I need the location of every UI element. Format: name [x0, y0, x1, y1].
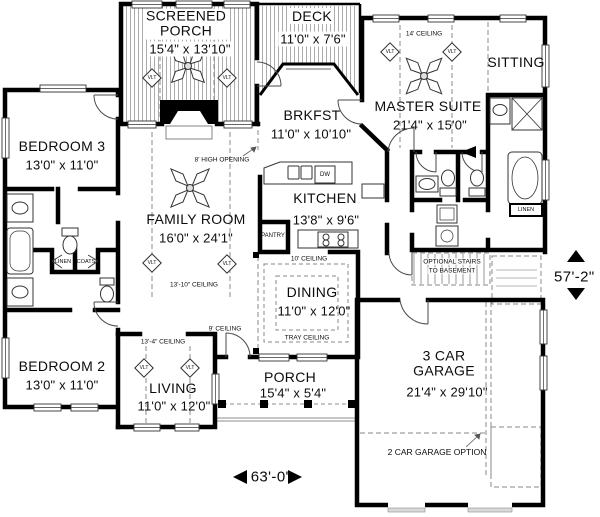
vault-marker: VLT	[180, 358, 200, 378]
vault-marker: VLT	[142, 253, 162, 273]
overall-depth-dimension: 57'-2"	[554, 269, 595, 286]
note-8ft-high-opening: 8' HIGH OPENING	[195, 157, 250, 164]
room-dims-deck: 11'0" x 7'6"	[278, 32, 348, 47]
room-label-master-suite: MASTER SUITE	[374, 98, 481, 114]
room-label-screened-porch: SCREENED PORCH	[144, 9, 228, 40]
note-garage-option: 2 CAR GARAGE OPTION	[388, 447, 487, 457]
label-pantry: PANTRY	[261, 233, 285, 239]
toilet-tank	[62, 228, 78, 236]
porch-column	[304, 400, 312, 408]
stoop-outline	[492, 256, 541, 304]
sink	[419, 179, 435, 190]
room-dims-bedroom3: 13'0" x 11'0"	[26, 158, 99, 173]
label-linen-right: LINEN	[518, 207, 534, 213]
toilet-bowl	[101, 286, 114, 302]
height-arrow-down	[567, 288, 585, 300]
note-optional-stairs-2: TO BASEMENT	[428, 267, 476, 274]
label-dishwasher: DW	[320, 172, 330, 178]
room-dims-master-suite: 21'4" x 15'0"	[393, 118, 467, 133]
note-optional-stairs-1: OPTIONAL STAIRS	[422, 258, 481, 265]
front-porch-edge	[215, 404, 357, 421]
sink	[493, 105, 507, 116]
sink	[12, 202, 28, 214]
vault-marker: VLT	[380, 42, 400, 62]
room-dims-brkfst: 11'0" x 10'10"	[271, 127, 351, 142]
label-coats: COATS	[77, 259, 96, 265]
note-tray-ceiling: TRAY CEILING	[285, 335, 330, 342]
cabinet	[362, 184, 384, 198]
toilet-tank	[100, 278, 114, 285]
room-dims-porch: 15'4" x 5'4"	[260, 386, 326, 401]
room-label-bedroom3: BEDROOM 3	[19, 138, 106, 154]
room-label-porch: PORCH	[264, 369, 316, 385]
room-label-family-room: FAMILY ROOM	[146, 211, 245, 227]
note-13-10-ceiling: 13'-10" CEILING	[170, 282, 218, 289]
width-arrow-left	[233, 470, 247, 484]
stoop-steps	[496, 270, 537, 286]
kitchen-sink	[301, 166, 312, 179]
porch-column	[260, 400, 268, 408]
toilet-bowl	[442, 170, 455, 186]
garage-option-bay	[491, 427, 541, 487]
room-label-brkfst: BRKFST	[283, 107, 340, 123]
toilet-tank	[469, 188, 485, 196]
hall-arrow	[461, 146, 476, 158]
vault-marker: VLT	[217, 254, 237, 274]
column	[253, 252, 259, 258]
kitchen-sink	[288, 166, 299, 179]
room-dims-bedroom2: 13'0" x 11'0"	[26, 378, 99, 393]
sink	[12, 286, 28, 298]
toilet-bowl	[63, 236, 77, 254]
room-dims-family-room: 16'0" x 24'1"	[159, 231, 233, 246]
vault-marker: VLT	[134, 358, 154, 378]
note-14ft-ceiling: 14' CEILING	[406, 31, 442, 38]
vault-marker: VLT	[217, 68, 237, 88]
porch-column	[218, 400, 226, 408]
overall-width-dimension: 63'-0"	[251, 469, 292, 486]
room-label-bedroom2: BEDROOM 2	[19, 358, 106, 374]
toilet-tank	[440, 188, 456, 196]
note-9ft-ceiling: 9' CEILING	[209, 326, 242, 333]
vault-marker: VLT	[442, 42, 462, 62]
room-dims-kitchen: 13'8" x 9'6"	[293, 213, 359, 228]
room-dims-living: 11'0" x 12'0"	[138, 399, 211, 414]
toilet-bowl	[471, 170, 484, 186]
room-dims-screened-porch: 15'4" x 13'10"	[147, 42, 232, 57]
fireplace	[160, 100, 218, 139]
label-linen-left: LINEN	[55, 259, 71, 265]
vault-marker: VLT	[142, 68, 162, 88]
floor-plan: SCREENED PORCH 15'4" x 13'10" DECK 11'0"…	[0, 0, 600, 517]
note-13-4-ceiling: 13'-4" CEILING	[141, 339, 185, 346]
room-dims-garage: 21'4" x 29'10"	[406, 385, 487, 400]
room-dims-dining: 11'0" x 12'0"	[278, 304, 351, 319]
porch-column	[348, 400, 356, 408]
room-label-sitting: SITTING	[487, 54, 544, 70]
note-10ft-ceiling: 10' CEILING	[291, 256, 327, 263]
room-label-deck: DECK	[290, 8, 334, 24]
room-label-living: LIVING	[149, 380, 197, 396]
room-label-garage: 3 CAR GARAGE	[409, 349, 479, 380]
room-label-dining: DINING	[287, 284, 338, 300]
room-label-kitchen: KITCHEN	[293, 190, 357, 206]
column	[253, 348, 259, 354]
height-arrow-up	[567, 250, 585, 262]
